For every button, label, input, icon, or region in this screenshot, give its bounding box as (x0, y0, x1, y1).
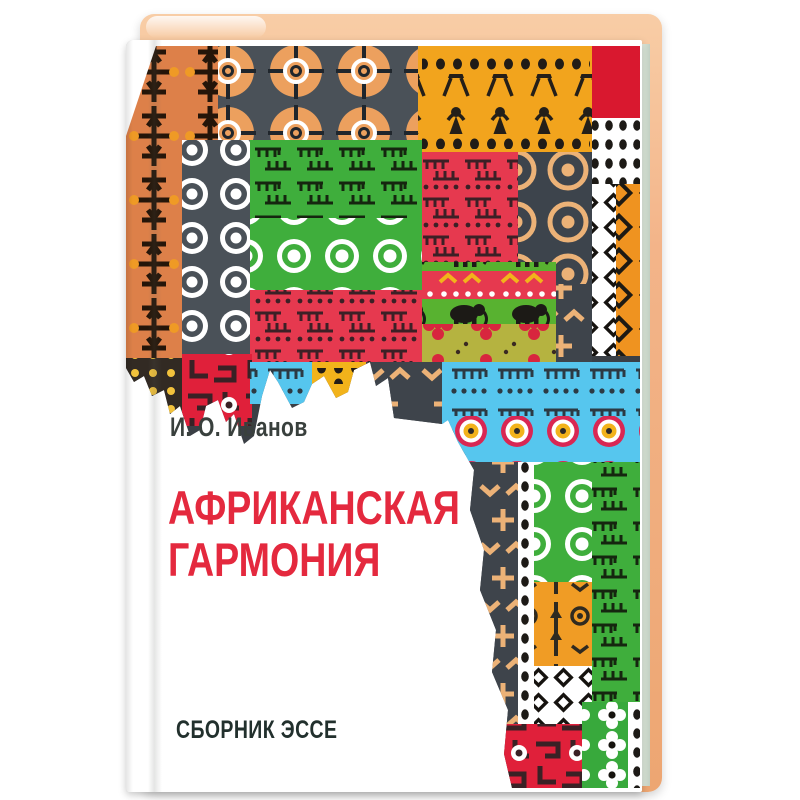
author-text: И. О. Иванов (170, 412, 308, 443)
board-highlight (146, 16, 266, 38)
title-line-2: гармония (168, 534, 460, 586)
title-line-1: Африканская (168, 482, 460, 534)
book-front-cover: И. О. Иванов Африканская гармония Сборни… (126, 40, 642, 792)
book-title: Африканская гармония (168, 482, 460, 585)
cover-hinge-shade (148, 40, 162, 792)
subtitle-text: Сборник эссе (176, 716, 337, 745)
book-product-photo: И. О. Иванов Африканская гармония Сборни… (0, 0, 800, 800)
cover-left-edge-shade (126, 40, 133, 792)
